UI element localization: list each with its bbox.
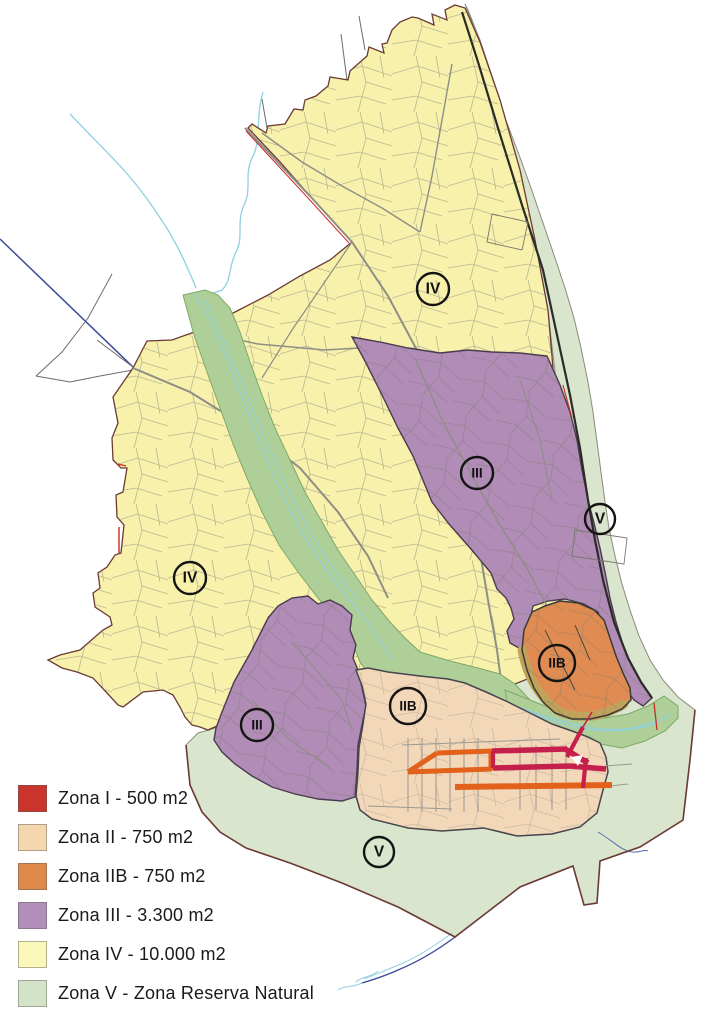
- legend-item-zona-iv: Zona IV - 10.000 m2: [18, 940, 314, 968]
- legend-item-zona-i: Zona I - 500 m2: [18, 784, 314, 812]
- legend-item-zona-iii: Zona III - 3.300 m2: [18, 901, 314, 929]
- zone-label-text: IV: [183, 570, 198, 587]
- legend-item-zona-iib: Zona IIB - 750 m2: [18, 862, 314, 890]
- legend-item-zona-v: Zona V - Zona Reserva Natural: [18, 979, 314, 1007]
- legend-swatch-zona-i: [18, 785, 47, 812]
- zone-label-text: IIB: [399, 699, 417, 714]
- legend-label: Zona I - 500 m2: [58, 788, 188, 809]
- zone-label-text: III: [251, 718, 262, 733]
- legend-label: Zona III - 3.300 m2: [58, 905, 214, 926]
- legend-label: Zona IV - 10.000 m2: [58, 944, 226, 965]
- zone-label-text: IIB: [548, 656, 566, 671]
- legend-item-zona-ii: Zona II - 750 m2: [18, 823, 314, 851]
- zoning-map-page: IVIVIIIIIIVVIIBIIB Zona I - 500 m2Zona I…: [0, 0, 703, 1024]
- zone-label-text: V: [374, 844, 385, 861]
- legend: Zona I - 500 m2Zona II - 750 m2Zona IIB …: [18, 784, 314, 1007]
- legend-label: Zona V - Zona Reserva Natural: [58, 983, 314, 1004]
- stream-nw: [205, 92, 263, 296]
- legend-swatch-zona-iib: [18, 863, 47, 890]
- zone-label-text: V: [595, 511, 606, 528]
- legend-swatch-zona-ii: [18, 824, 47, 851]
- legend-swatch-zona-v: [18, 980, 47, 1007]
- legend-swatch-zona-iv: [18, 941, 47, 968]
- zone-label-text: III: [471, 466, 482, 481]
- zone-label-text: IV: [426, 281, 441, 298]
- legend-label: Zona IIB - 750 m2: [58, 866, 205, 887]
- legend-swatch-zona-iii: [18, 902, 47, 929]
- legend-label: Zona II - 750 m2: [58, 827, 193, 848]
